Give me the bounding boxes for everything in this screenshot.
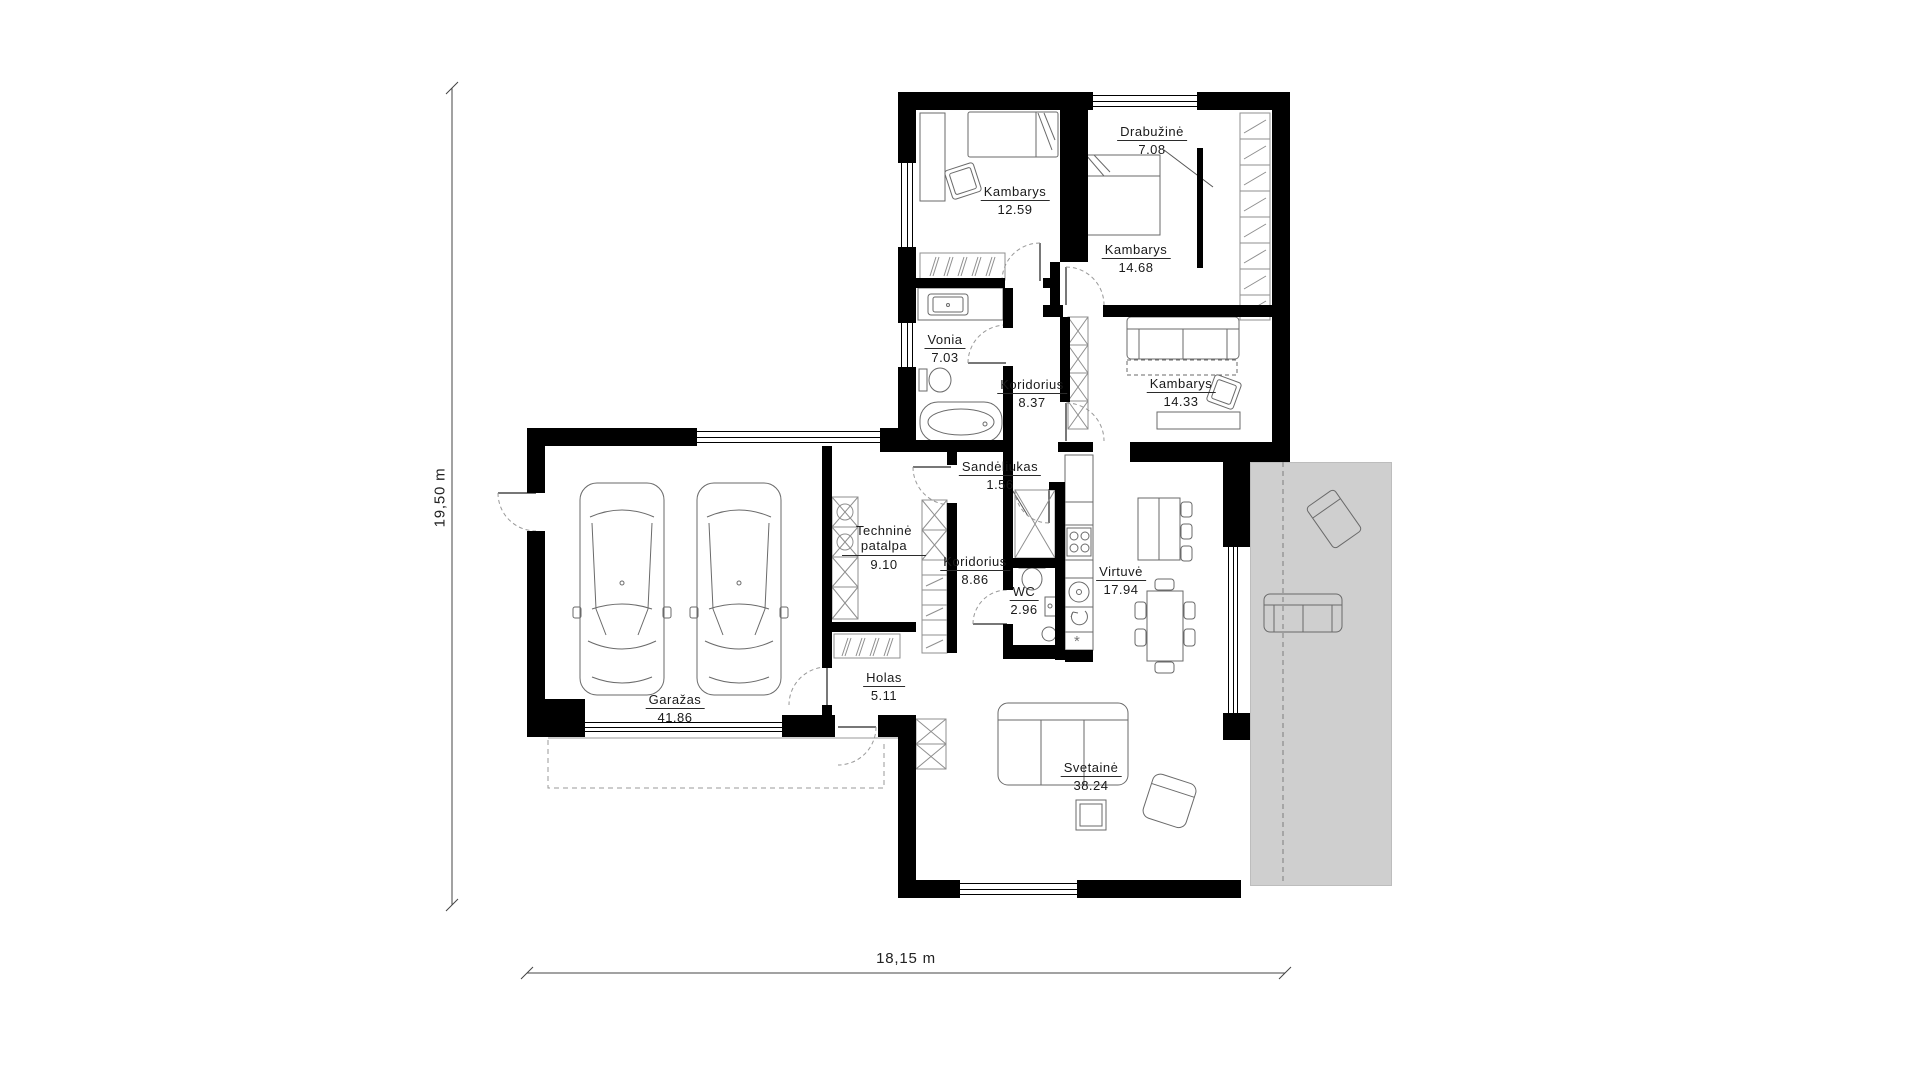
wall	[822, 622, 916, 632]
wall	[1223, 448, 1250, 547]
room-label-virtuve: Virtuvė 17.94	[1096, 564, 1146, 598]
room-name: Kambarys	[981, 184, 1050, 201]
wardrobe-rail-icon	[920, 253, 1005, 280]
sofa-bed-icon	[1127, 317, 1239, 375]
doors	[498, 243, 1104, 765]
room-label-technine-patalpa: Techninė patalpa 9.10	[842, 523, 926, 572]
room-label-koridorius-2: Koridorius 8.86	[940, 554, 1010, 588]
washbasin-counter-icon	[918, 288, 1003, 320]
wall	[1077, 880, 1241, 898]
room-label-wc: WC 2.96	[1010, 584, 1039, 618]
wall	[1013, 558, 1055, 568]
chair-icon	[944, 162, 982, 200]
wall	[1130, 442, 1290, 462]
freezer-icon: *	[1074, 633, 1080, 650]
double-bed-icon	[1086, 155, 1160, 235]
wall	[1003, 624, 1013, 645]
room-label-koridorius-1: Koridorius 8.37	[997, 377, 1067, 411]
terrace-lounge-chair-icon	[1306, 489, 1363, 549]
storage-x-shelving-icon	[1068, 317, 1088, 429]
room-label-kambarys-1: Kambarys 12.59	[981, 184, 1050, 218]
window-terrace-door	[1228, 547, 1238, 713]
room-area: 41.86	[646, 709, 705, 725]
room-label-sandeliukas: Sandėliukas 1.56	[959, 459, 1041, 493]
room-area: 7.03	[924, 349, 965, 365]
stove-icon	[1067, 528, 1091, 556]
room-name: Drabužinė	[1117, 124, 1187, 141]
storage-x-shelving-icon	[1015, 490, 1055, 558]
room-name: Garažas	[646, 692, 705, 709]
wall	[822, 446, 832, 668]
coat-rack-icon	[834, 634, 900, 658]
kitchen-counter-icon	[1065, 455, 1093, 650]
car-icon	[573, 483, 671, 695]
room-name: Kambarys	[1147, 376, 1216, 393]
wall	[527, 428, 697, 446]
room-name: Svetainė	[1061, 760, 1122, 777]
wall	[527, 531, 545, 717]
wall	[898, 715, 916, 898]
wall	[1043, 305, 1063, 317]
room-name: Virtuvė	[1096, 564, 1146, 581]
wall	[898, 110, 916, 163]
room-label-drabuzine: Drabužinė 7.08	[1117, 124, 1187, 158]
room-area: 2.96	[1010, 601, 1039, 617]
toilet-icon	[919, 368, 951, 392]
room-area: 8.86	[940, 571, 1010, 587]
room-area: 9.10	[842, 556, 926, 572]
bathtub-icon	[920, 402, 1002, 442]
dimension-label-horizontal: 18,15 m	[864, 950, 948, 967]
work-desk-icon	[1157, 412, 1240, 429]
wall	[1103, 305, 1290, 317]
wall	[1223, 713, 1250, 740]
terrace-furniture	[1264, 489, 1362, 632]
walk-in-closet-shelving-icon	[1240, 113, 1270, 320]
room-name: Vonia	[924, 332, 965, 349]
window	[960, 883, 1077, 895]
room-area: 5.11	[863, 687, 905, 703]
wall	[1060, 110, 1088, 262]
wall	[527, 699, 585, 737]
desk-icon	[920, 113, 945, 201]
wall	[898, 880, 960, 898]
wall-partition	[1197, 148, 1203, 268]
room-area: 7.08	[1117, 141, 1187, 157]
plan-graphics: *	[0, 0, 1920, 1080]
door-arcs	[498, 243, 1104, 765]
bedroom3-furniture	[1068, 317, 1242, 429]
room-name: Holas	[863, 670, 905, 687]
wall	[947, 448, 957, 465]
room-name: Techninė patalpa	[842, 523, 926, 556]
dishwasher-icon	[1071, 611, 1087, 625]
room-area: 8.37	[997, 394, 1067, 410]
wall	[1272, 92, 1290, 460]
window	[697, 431, 880, 443]
terrace-bench-icon	[1264, 594, 1342, 632]
kitchen-sink-icon	[1069, 582, 1089, 602]
room-label-garazas: Garažas 41.86	[646, 692, 705, 726]
window	[901, 323, 913, 367]
wall	[1043, 278, 1060, 288]
storage-x-shelving-icon	[916, 719, 946, 769]
room-label-vonia: Vonia 7.03	[924, 332, 965, 366]
room-label-holas: Holas 5.11	[863, 670, 905, 704]
wall	[527, 446, 545, 493]
room-area: 12.59	[981, 201, 1050, 217]
dimension-label-vertical: 19,50 m	[432, 456, 449, 540]
wall	[898, 278, 1005, 288]
wall	[1065, 650, 1093, 662]
room-label-kambarys-3: Kambarys 14.33	[1147, 376, 1216, 410]
room-area: 17.94	[1096, 581, 1146, 597]
room-area: 38.24	[1061, 777, 1122, 793]
room-name: Sandėliukas	[959, 459, 1041, 476]
wall	[1003, 288, 1013, 328]
room-area: 14.68	[1102, 259, 1171, 275]
room-name: WC	[1010, 584, 1039, 601]
kitchen-island-icon	[1138, 498, 1192, 561]
wall	[822, 705, 832, 737]
room-name: Koridorius	[940, 554, 1010, 571]
floor-plan: *	[0, 0, 1920, 1080]
wall	[898, 92, 1093, 110]
room-name: Koridorius	[997, 377, 1067, 394]
wall	[1055, 482, 1065, 660]
coffee-table-icon	[1076, 800, 1106, 830]
room-label-svetaine: Svetainė 38.24	[1061, 760, 1122, 794]
armchair-icon	[1141, 772, 1198, 830]
room-area: 14.33	[1147, 393, 1216, 409]
cars	[573, 483, 788, 695]
car-icon	[690, 483, 788, 695]
room-label-kambarys-2: Kambarys 14.68	[1102, 242, 1171, 276]
single-bed-icon	[968, 112, 1058, 157]
window	[901, 163, 913, 247]
room-area: 1.56	[959, 476, 1041, 492]
window	[1093, 95, 1197, 107]
wall	[1058, 442, 1093, 452]
room-name: Kambarys	[1102, 242, 1171, 259]
